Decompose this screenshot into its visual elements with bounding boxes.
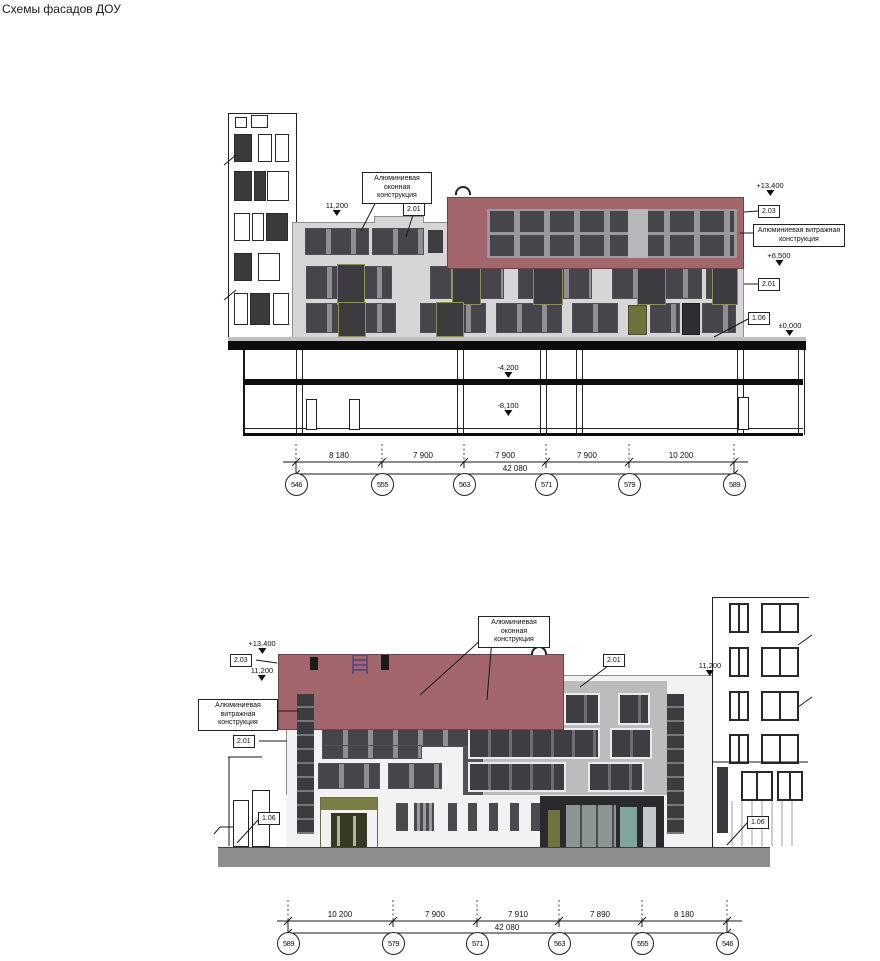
elevation-value: ±0,000 [779,321,802,330]
dimension-label: 8 180 [329,451,349,460]
tag-box: 2.01 [233,735,255,748]
axis-bubble: 546 [716,932,739,955]
dimension-total-label: 42 080 [503,464,527,473]
dimension-label: 7 890 [590,910,610,919]
axis-bubble: 555 [371,473,394,496]
level-triangle-icon [766,190,774,200]
callout-window-construction: Алюминиевая оконная конструкция [362,172,432,204]
elevation-marker: -4,200 [497,363,518,382]
level-triangle-icon [258,648,266,658]
elevation-value: +13,400 [248,639,275,648]
tag-box: 2.01 [758,278,780,291]
elevation-marker: ±0,000 [779,321,802,340]
elevation-marker: +13,400 [756,181,783,200]
elevation-marker: +6,500 [767,251,790,270]
tag-box: 1.06 [748,312,770,325]
dimension-label: 7 910 [508,910,528,919]
elevation-marker: 11,200 [251,666,273,685]
dimension-label: 7 900 [577,451,597,460]
level-triangle-icon [786,330,794,340]
dimension-label: 10 200 [328,910,352,919]
dimension-label: 7 900 [495,451,515,460]
level-triangle-icon [333,210,341,220]
axis-bubble: 589 [723,473,746,496]
drawing-sheet: Схемы фасадов ДОУ [0,0,880,961]
dimension-total-label: 42 080 [495,923,519,932]
axis-bubble: 579 [618,473,641,496]
callout-curtain-construction: Алюминиевая витражная конструкция [753,224,845,247]
level-triangle-icon [504,372,512,382]
level-triangle-icon [706,670,714,680]
dimension-label: 8 180 [674,910,694,919]
tag-box: 2.03 [230,654,252,667]
elevation-value: +6,500 [767,251,790,260]
axis-bubble: 546 [285,473,308,496]
axis-bubble: 563 [548,932,571,955]
elevation-value: -4,200 [497,363,518,372]
dimension-label: 7 900 [413,451,433,460]
elevation-value: 11,200 [251,666,273,675]
level-triangle-icon [258,675,266,685]
elevation-marker: 11,200 [699,661,721,680]
elevation-marker: -8,100 [497,401,518,420]
elevation-value: 11,200 [326,201,348,210]
elevation-marker: +13,400 [248,639,275,658]
tag-box: 2.01 [403,203,425,216]
elevation-value: +13,400 [756,181,783,190]
tag-box: 1.06 [258,812,280,825]
axis-bubble: 579 [382,932,405,955]
tag-box: 2.03 [758,205,780,218]
elevation-value: 11,200 [699,661,721,670]
level-triangle-icon [775,260,783,270]
callout-curtain-construction: Алюминиевая витражная конструкция [198,699,278,731]
axis-bubble: 571 [466,932,489,955]
dimension-label: 7 900 [425,910,445,919]
axis-bubble: 563 [453,473,476,496]
axis-bubble: 571 [535,473,558,496]
axis-bubble: 589 [277,932,300,955]
level-triangle-icon [504,410,512,420]
elevation-marker: 11,200 [326,201,348,220]
axis-bubble: 555 [631,932,654,955]
dimension-label: 10 200 [669,451,693,460]
callout-window-construction: Алюминиевая оконная конструкция [478,616,550,648]
elevation-value: -8,100 [497,401,518,410]
tag-box: 1.06 [747,816,769,829]
tag-box: 2.01 [603,654,625,667]
